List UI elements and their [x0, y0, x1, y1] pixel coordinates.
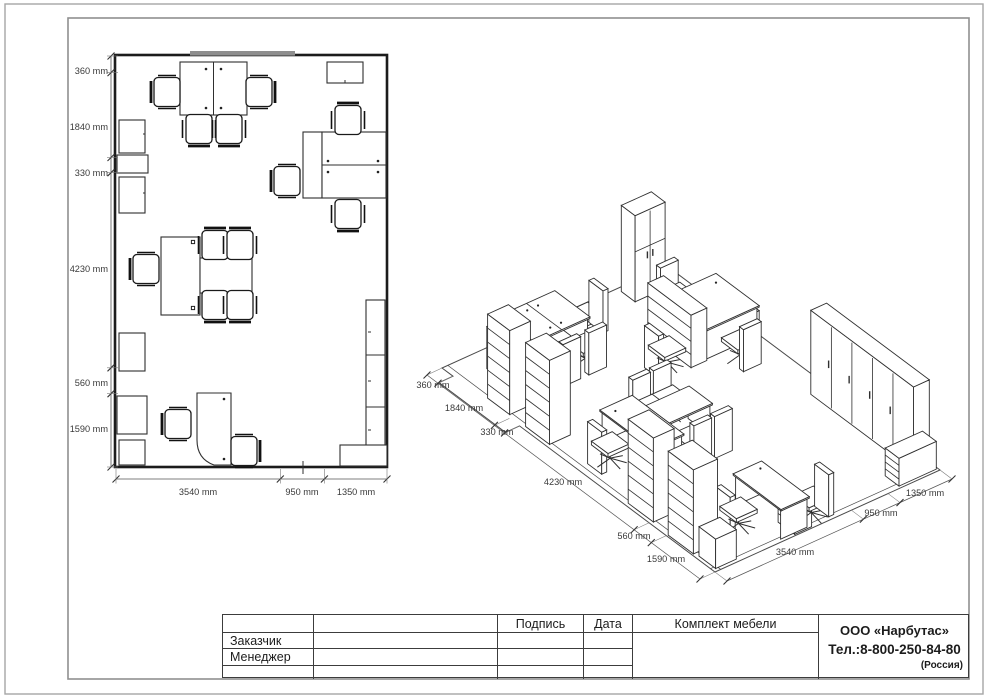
- plan-chair: [213, 115, 246, 147]
- empty-signature-cell: [498, 666, 584, 679]
- plan-furniture: [327, 62, 363, 83]
- plan-furniture: [340, 445, 387, 466]
- iso-cube-cabinet: [699, 517, 736, 568]
- iso-dim-label: 1840 mm: [445, 403, 484, 413]
- plan-vertical-dim: 1590 mm: [70, 424, 109, 434]
- plan-vertical-dim: 330 mm: [75, 168, 109, 178]
- empty-date-cell: [584, 666, 633, 679]
- plan-chair: [246, 76, 275, 109]
- iso-dim-label: 1350 mm: [906, 488, 945, 498]
- plan-chair: [271, 165, 300, 198]
- iso-bookcase: [628, 410, 674, 522]
- plan-furniture: [117, 396, 147, 434]
- iso-dim-label: 950 mm: [864, 508, 898, 518]
- plan-vertical-dim: 360 mm: [75, 66, 109, 76]
- iso-dim-label: 1590 mm: [647, 554, 686, 564]
- iso-dim-label: 560 mm: [617, 531, 651, 541]
- plan-vertical-dim: 4230 mm: [70, 264, 109, 274]
- company-name: ООО «Нарбутас»: [840, 622, 949, 641]
- drawing-canvas: 360 mm1840 mm330 mm4230 mm560 mm1590 mm3…: [0, 0, 988, 700]
- title-block-empty-cell: [223, 615, 314, 633]
- iso-dim-label: 360 mm: [416, 380, 450, 390]
- plan-chair: [130, 253, 159, 286]
- iso-bookcase: [488, 305, 531, 415]
- furniture-set-value-cell: [633, 633, 819, 679]
- customer-value-cell: [314, 633, 498, 649]
- plan-furniture: [117, 155, 148, 173]
- plan-vertical-dim: 560 mm: [75, 378, 109, 388]
- manager-value-cell: [314, 649, 498, 666]
- plan-chair: [183, 115, 216, 147]
- plan-chair: [332, 103, 365, 135]
- plan-furniture: [161, 237, 200, 315]
- plan-furniture: [119, 440, 145, 465]
- furniture-set-header: Комплект мебели: [633, 615, 819, 633]
- plan-furniture: [200, 258, 252, 293]
- plan-furniture: [366, 300, 385, 455]
- empty-row-label: [223, 666, 314, 679]
- plan-horizontal-dim: 950 mm: [285, 487, 319, 497]
- plan-chair: [151, 76, 180, 109]
- iso-dim-label: 4230 mm: [544, 477, 583, 487]
- manager-date-cell: [584, 649, 633, 666]
- plan-furniture: [303, 132, 322, 198]
- iso-dim-label: 330 mm: [480, 427, 514, 437]
- plan-chair: [231, 435, 260, 468]
- plan-horizontal-dim: 3540 mm: [179, 487, 218, 497]
- customer-row-label: Заказчик: [223, 633, 314, 649]
- iso-dim-label: 3540 mm: [776, 547, 815, 557]
- company-info-cell: ООО «Нарбутас» Тел.:8-800-250-84-80 (Рос…: [819, 615, 970, 679]
- plan-l-desk: [197, 393, 231, 465]
- plan-chair: [224, 228, 257, 260]
- date-column-header: Дата: [584, 615, 633, 633]
- company-phone: Тел.:8-800-250-84-80: [828, 641, 960, 659]
- iso-bookcase: [526, 333, 571, 444]
- plan-chair: [162, 408, 191, 441]
- plan-horizontal-dim: 1350 mm: [337, 487, 376, 497]
- title-block: Подпись Дата Комплект мебели ООО «Нарбут…: [222, 614, 969, 678]
- empty-row-cell: [314, 666, 498, 679]
- customer-signature-cell: [498, 633, 584, 649]
- floor-plan-view: [115, 51, 387, 474]
- customer-date-cell: [584, 633, 633, 649]
- plan-furniture: [119, 120, 145, 153]
- plan-furniture: [119, 333, 145, 371]
- signature-column-header: Подпись: [498, 615, 584, 633]
- drawing-sheet: 360 mm1840 mm330 mm4230 mm560 mm1590 mm3…: [0, 0, 988, 700]
- company-country: (Россия): [921, 659, 966, 672]
- manager-row-label: Менеджер: [223, 649, 314, 666]
- plan-furniture: [119, 177, 145, 213]
- plan-vertical-dim: 1840 mm: [70, 122, 109, 132]
- plan-chair: [332, 200, 365, 232]
- floor-plan: [115, 51, 387, 474]
- window-segment: [190, 51, 295, 56]
- title-block-empty-cell: [314, 615, 498, 633]
- manager-signature-cell: [498, 649, 584, 666]
- plan-chair: [224, 291, 257, 323]
